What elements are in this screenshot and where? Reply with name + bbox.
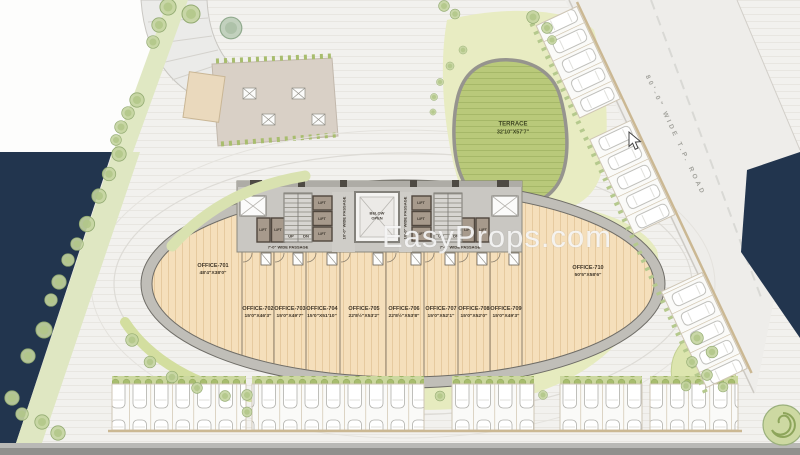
office-704-label: OFFICE-70415'0"X51'10" bbox=[306, 305, 337, 318]
service-shaft-right bbox=[492, 196, 518, 216]
passage-7ft-label: 7'-0" WIDE PASSAGE bbox=[268, 245, 309, 250]
passage-10ft-label: 10'-0" WIDE PASSAGE bbox=[342, 197, 347, 240]
office-710-label: OFFICE-71050'5"X58'6" bbox=[572, 264, 603, 277]
office-706-label: OFFICE-70622'8½"X53'8" bbox=[388, 305, 419, 318]
parking-row bbox=[560, 384, 642, 430]
watermark: EasyProps.com bbox=[382, 219, 612, 255]
stair-up-label: UP bbox=[288, 234, 294, 239]
lift-label: LIFT bbox=[259, 228, 267, 232]
office-701-label: OFFICE-70148'4"X38'0" bbox=[197, 262, 228, 275]
lift-label: LIFT bbox=[417, 201, 425, 205]
parking-row bbox=[252, 384, 424, 430]
amenity-structure bbox=[183, 72, 225, 123]
mouse-cursor bbox=[628, 131, 642, 151]
site-plan-screenshot: OFFICE-70148'4"X38'0" OFFICE-70215'0"X46… bbox=[0, 0, 800, 455]
lift-label: LIFT bbox=[274, 228, 282, 232]
lift-label: LIFT bbox=[318, 201, 326, 205]
office-702-label: OFFICE-70215'0"X46'3" bbox=[242, 305, 273, 318]
office-709-label: OFFICE-70915'0"X49'3" bbox=[490, 305, 521, 318]
parking-row bbox=[452, 384, 534, 430]
stair-dn-label: DN bbox=[303, 234, 309, 239]
lift-label: LIFT bbox=[318, 232, 326, 236]
office-703-label: OFFICE-70315'0"X49'7" bbox=[274, 305, 305, 318]
office-708-label: OFFICE-70815'0"X52'0" bbox=[458, 305, 489, 318]
bottom-road-strip bbox=[0, 443, 800, 448]
landscape-swirl bbox=[763, 405, 800, 445]
terrace-label: TERRACE32'10"X57'7" bbox=[497, 121, 529, 135]
office-707-label: OFFICE-70715'0"X52'1" bbox=[425, 305, 456, 318]
lift-label: LIFT bbox=[318, 217, 326, 221]
office-705-label: OFFICE-70522'8½"X53'2" bbox=[348, 305, 379, 318]
